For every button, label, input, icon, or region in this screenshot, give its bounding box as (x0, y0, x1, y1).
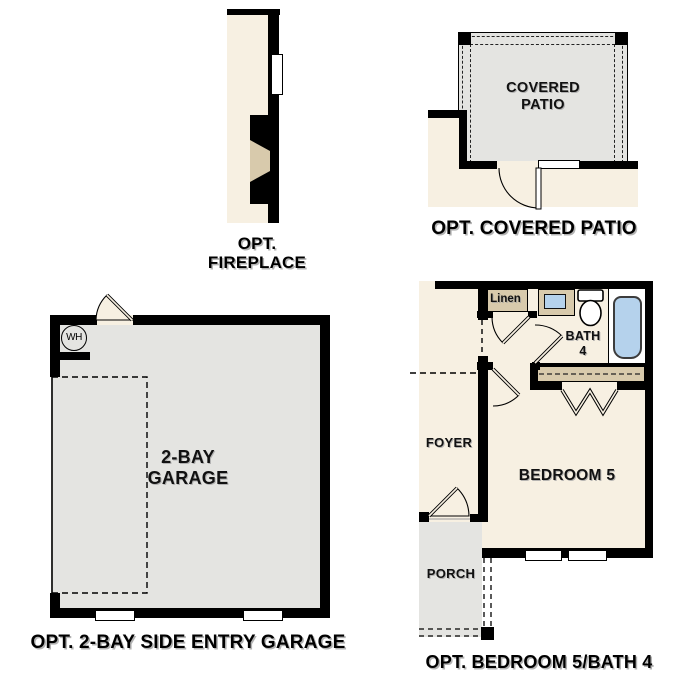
firebox (250, 140, 270, 182)
garage-caption: OPT. 2-BAY SIDE ENTRY GARAGE (28, 632, 348, 654)
patio-caption: OPT. COVERED PATIO (428, 218, 640, 240)
patio-door-leaf (536, 168, 541, 209)
garage-room-label: 2-BAY GARAGE (128, 447, 248, 489)
patio-room-label-line2: PATIO (483, 97, 603, 114)
toilet-bowl (580, 301, 601, 326)
toilet-tank (578, 290, 603, 301)
bedroom-caption: OPT. BEDROOM 5/BATH 4 (418, 652, 660, 673)
bedroom-door-leaf-inner (493, 369, 519, 395)
bath-room-label-line1: BATH (553, 329, 613, 344)
closet-bifold-doors (562, 390, 617, 413)
fireplace-caption: OPT. FIREPLACE (197, 234, 317, 272)
patio-door-arc (499, 168, 539, 208)
foyer-label: FOYER (418, 436, 480, 451)
porch-label: PORCH (420, 567, 482, 582)
bath-room-label-line2: 4 (553, 344, 613, 359)
fireplace-caption-line2: FIREPLACE (197, 253, 317, 272)
patio-room-label: COVERED PATIO (483, 80, 603, 113)
garage-room-label-line2: GARAGE (128, 468, 248, 489)
fireplace-caption-line1: OPT. (197, 234, 317, 253)
floor-plan-sheet: WH (0, 0, 687, 687)
patio-room-label-line1: COVERED (483, 80, 603, 97)
linen-label: Linen (483, 293, 528, 306)
bedroom-door-arc (493, 395, 519, 406)
bath-room-label: BATH 4 (553, 329, 613, 359)
hall-door-leaf-inner (503, 317, 529, 343)
hall-door-arc (492, 317, 503, 343)
bedroom-label: BEDROOM 5 (507, 467, 627, 485)
garage-room-label-line1: 2-BAY (128, 447, 248, 468)
